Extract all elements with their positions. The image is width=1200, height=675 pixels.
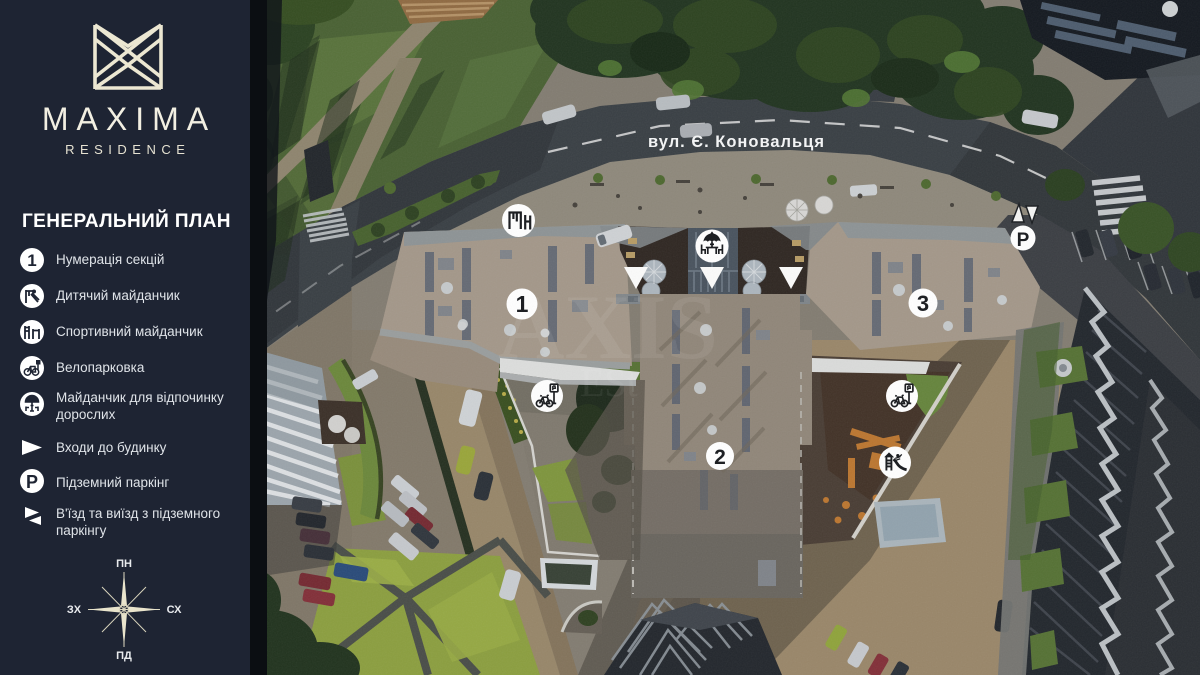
svg-text:ЗХ: ЗХ bbox=[67, 604, 82, 616]
svg-text:СХ: СХ bbox=[167, 604, 183, 616]
svg-text:P: P bbox=[26, 472, 38, 492]
svg-text:ПН: ПН bbox=[116, 558, 132, 570]
svg-text:1: 1 bbox=[27, 251, 36, 270]
svg-text:ПД: ПД bbox=[116, 650, 132, 662]
